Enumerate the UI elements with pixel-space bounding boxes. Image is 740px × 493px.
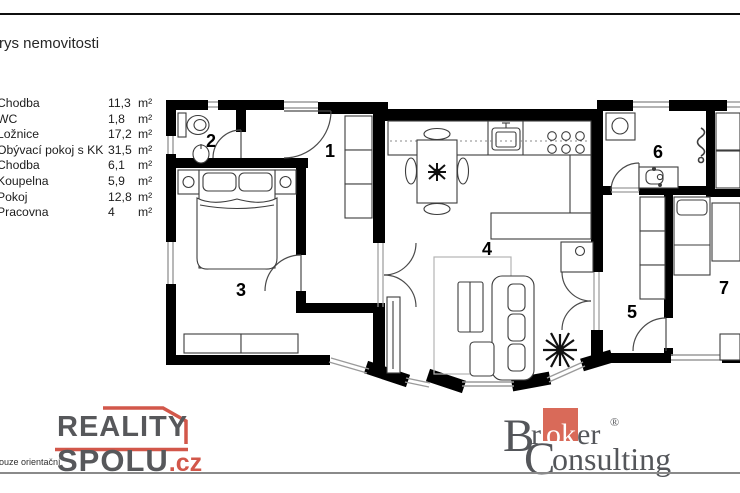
nightstand-left-icon bbox=[178, 170, 199, 194]
room-number-label: 5 bbox=[627, 302, 637, 322]
stove-icon bbox=[561, 242, 593, 272]
room-number-label: 1 bbox=[325, 141, 335, 161]
floorplan-page: { "page": { "title": "rys nemovitosti" }… bbox=[0, 0, 740, 493]
hall5-door-icon bbox=[633, 318, 666, 351]
broker-consulting-logo: B r ok er ® C onsulting bbox=[497, 407, 727, 473]
toilet-icon bbox=[178, 113, 209, 137]
entrance-door-icon bbox=[284, 111, 331, 158]
single-bed-icon bbox=[674, 197, 710, 275]
room-number-label: 3 bbox=[236, 280, 246, 300]
room-number-label: 6 bbox=[653, 142, 663, 162]
coffee-table-icon bbox=[458, 282, 483, 332]
bathroom-door-icon bbox=[611, 163, 639, 192]
bathroom-shelves-icon bbox=[716, 113, 740, 188]
room-number-label: 4 bbox=[482, 239, 492, 259]
broker-letters-onsulting: onsulting bbox=[552, 443, 671, 475]
table-plant-icon bbox=[428, 163, 446, 181]
washing-machine-icon bbox=[606, 113, 635, 140]
disclaimer-text: pouze orientační bbox=[0, 457, 61, 467]
shower-fixture-icon bbox=[698, 128, 705, 163]
hall-wardrobe-icon bbox=[345, 116, 372, 218]
bottom-rule bbox=[0, 472, 740, 474]
room-number-label: 7 bbox=[719, 278, 729, 298]
bedroom-bench-icon bbox=[184, 334, 298, 353]
wc-door-icon bbox=[213, 130, 241, 158]
reality-spolu-word1: REALITY bbox=[57, 413, 188, 442]
kitchen-cabinet-icon bbox=[491, 155, 591, 239]
double-bed-icon bbox=[197, 170, 277, 269]
hall5-wardrobe-icon bbox=[640, 197, 665, 299]
tv-board-icon bbox=[387, 297, 400, 373]
broker-letter-c: C bbox=[524, 436, 555, 483]
hall5-double-door-icon bbox=[562, 272, 599, 330]
nightstand-right-icon bbox=[275, 170, 296, 194]
floor-plant-icon bbox=[543, 333, 577, 367]
registered-mark: ® bbox=[610, 416, 619, 428]
room-number-label: 2 bbox=[206, 131, 216, 151]
